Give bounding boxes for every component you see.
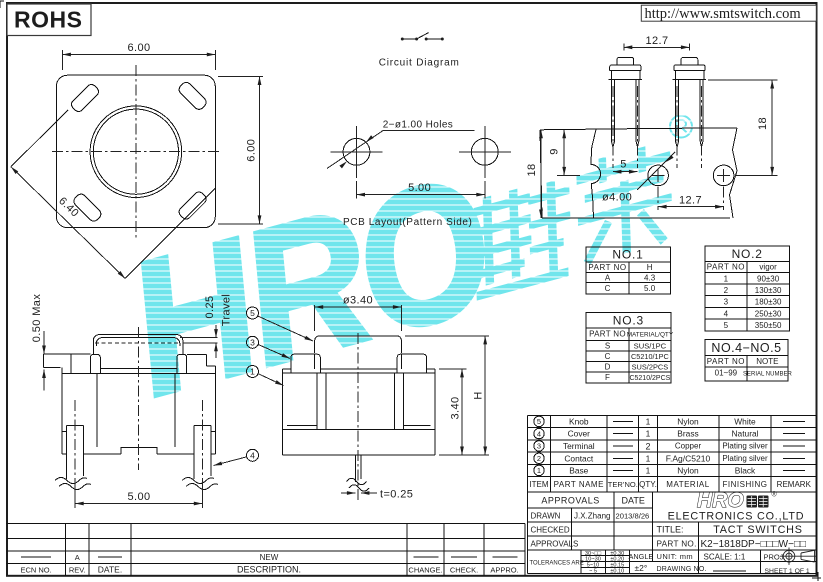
svg-text:Copper: Copper <box>675 441 702 450</box>
svg-text:S: S <box>605 341 610 350</box>
svg-text:130±30: 130±30 <box>755 286 782 295</box>
svg-text:2: 2 <box>537 454 541 463</box>
svg-text:J.X.Zhang: J.X.Zhang <box>574 511 610 520</box>
svg-text:NO.1: NO.1 <box>612 248 643 262</box>
svg-text:5: 5 <box>620 159 627 171</box>
svg-text:3: 3 <box>724 298 729 307</box>
svg-text:CHECK.: CHECK. <box>450 565 478 574</box>
svg-text:QTY.: QTY. <box>639 480 657 489</box>
svg-text:18: 18 <box>526 163 538 176</box>
svg-text:18: 18 <box>757 117 769 130</box>
svg-text:PROJ.: PROJ. <box>764 552 786 561</box>
svg-text:1: 1 <box>537 466 541 475</box>
svg-text:NOTE: NOTE <box>756 357 778 366</box>
svg-text:t=0.25: t=0.25 <box>380 489 413 501</box>
svg-text:5: 5 <box>250 308 255 318</box>
svg-text:DESCRIPTION.: DESCRIPTION. <box>237 565 301 575</box>
svg-text:SCALE: 1:1: SCALE: 1:1 <box>704 552 746 561</box>
svg-text:350±50: 350±50 <box>755 321 782 330</box>
svg-text:APPROVALS: APPROVALS <box>531 539 579 548</box>
svg-text:SERIAL NUMBER: SERIAL NUMBER <box>743 371 792 377</box>
svg-text:90±30: 90±30 <box>757 274 780 283</box>
svg-text:APPRO.: APPRO. <box>490 565 518 574</box>
svg-text:C: C <box>605 284 611 293</box>
svg-text:0.25: 0.25 <box>204 295 216 318</box>
svg-text:MATERIAL/QTY: MATERIAL/QTY <box>627 332 674 339</box>
svg-text:C5210/2PCS: C5210/2PCS <box>629 375 670 382</box>
svg-text:1: 1 <box>724 274 729 283</box>
svg-text:MATERIAL: MATERIAL <box>666 480 709 489</box>
svg-text:A: A <box>605 274 611 283</box>
svg-text:Brass: Brass <box>677 429 698 439</box>
svg-text:TOLERANCES ARE: TOLERANCES ARE <box>530 560 584 566</box>
svg-text:2: 2 <box>645 441 650 451</box>
svg-text:6.00: 6.00 <box>246 139 258 162</box>
svg-text:Black: Black <box>735 465 756 475</box>
svg-text:1: 1 <box>250 367 255 377</box>
svg-text:0.50 Max: 0.50 Max <box>31 294 43 343</box>
svg-text:®: ® <box>772 491 778 499</box>
svg-text:PART NO: PART NO <box>589 330 626 339</box>
svg-text:D: D <box>605 363 611 372</box>
svg-text:180±30: 180±30 <box>755 298 782 307</box>
svg-text:DRAWN: DRAWN <box>531 511 561 520</box>
svg-text:5: 5 <box>724 321 729 330</box>
svg-text:2013/8/26: 2013/8/26 <box>616 511 650 520</box>
svg-text:PART NO: PART NO <box>707 357 745 366</box>
svg-text:PART NO: PART NO <box>588 263 626 272</box>
svg-text:±0.10: ±0.10 <box>610 569 624 575</box>
svg-text:4.3: 4.3 <box>644 274 656 283</box>
svg-text:White: White <box>734 416 756 426</box>
svg-text:3.40: 3.40 <box>450 396 462 419</box>
svg-text:12.7: 12.7 <box>645 35 668 47</box>
svg-text:SUS/2PCS: SUS/2PCS <box>632 363 669 372</box>
svg-text:12.7: 12.7 <box>679 194 702 206</box>
svg-text:vigor: vigor <box>759 263 777 272</box>
svg-text:REMARK: REMARK <box>777 480 812 489</box>
svg-text:Knob: Knob <box>569 416 589 426</box>
svg-text:F: F <box>605 373 610 382</box>
svg-text:5.00: 5.00 <box>127 491 150 503</box>
svg-text:5.00: 5.00 <box>408 182 431 194</box>
svg-text:Plating silver: Plating silver <box>722 454 768 463</box>
svg-text:DATE: DATE <box>622 496 645 506</box>
svg-text:Contact: Contact <box>564 453 594 463</box>
svg-text:6.00: 6.00 <box>127 42 150 54</box>
svg-text:K2−1818DP−□□□W−□□: K2−1818DP−□□□W−□□ <box>701 539 807 550</box>
svg-text:4: 4 <box>250 450 255 460</box>
svg-text:REV.: REV. <box>69 565 86 574</box>
svg-text:TITLE:: TITLE: <box>657 524 684 534</box>
svg-text:ITEM: ITEM <box>529 480 548 489</box>
svg-text:Natural: Natural <box>732 429 759 439</box>
svg-text:F.Ag/C5210: F.Ag/C5210 <box>666 453 711 463</box>
svg-text:PART NO: PART NO <box>707 263 745 272</box>
svg-text:H: H <box>647 263 653 272</box>
svg-text:SUS/1PC: SUS/1PC <box>634 341 667 350</box>
svg-text:3: 3 <box>250 337 255 347</box>
svg-text:5.0: 5.0 <box>644 284 656 293</box>
svg-text:Nylon: Nylon <box>677 465 699 475</box>
svg-text:C5210/1PC: C5210/1PC <box>631 352 669 361</box>
svg-text:1: 1 <box>646 453 651 463</box>
svg-text:±2°: ±2° <box>635 563 648 573</box>
svg-text:250±30: 250±30 <box>755 309 782 318</box>
svg-text:2−ø1.00 Holes: 2−ø1.00 Holes <box>383 120 454 131</box>
svg-text:http://www.smtswitch.com: http://www.smtswitch.com <box>645 6 802 22</box>
svg-text:4: 4 <box>537 429 541 438</box>
svg-text:3: 3 <box>537 442 541 451</box>
svg-text:DRAWING NO.: DRAWING NO. <box>657 566 707 573</box>
svg-text:1: 1 <box>646 465 651 475</box>
svg-text:NO.2: NO.2 <box>732 247 763 261</box>
svg-text:ROHS: ROHS <box>14 7 82 33</box>
svg-text:HRO: HRO <box>697 489 744 512</box>
svg-text:ECN NO.: ECN NO. <box>20 565 51 574</box>
svg-text:CHECKED: CHECKED <box>531 525 570 534</box>
svg-text:Base: Base <box>569 465 588 475</box>
svg-text:2: 2 <box>724 286 729 295</box>
svg-text:UNIT: mm: UNIT: mm <box>657 552 694 561</box>
svg-text:1: 1 <box>646 429 651 439</box>
svg-text:TACT SWITCHS: TACT SWITCHS <box>713 524 803 536</box>
svg-text:NEW: NEW <box>260 553 279 562</box>
svg-text:Terminal: Terminal <box>563 441 595 451</box>
svg-text:01~99: 01~99 <box>715 369 738 378</box>
svg-text:Plating silver: Plating silver <box>722 441 768 450</box>
svg-text:ø4.00: ø4.00 <box>602 192 632 204</box>
svg-text:H: H <box>473 391 485 399</box>
svg-text:ø3.40: ø3.40 <box>343 295 373 307</box>
svg-text:~ 5: ~ 5 <box>589 569 597 575</box>
svg-text:CHANGE.: CHANGE. <box>408 565 442 574</box>
svg-text:Circuit Diagram: Circuit Diagram <box>379 58 460 69</box>
svg-text:NO.4−NO.5: NO.4−NO.5 <box>711 341 781 355</box>
svg-text:5: 5 <box>537 417 541 426</box>
svg-text:4: 4 <box>724 309 729 318</box>
svg-text:PCB Layout(Pattern Side): PCB Layout(Pattern Side) <box>343 217 472 228</box>
svg-text:PART NO.: PART NO. <box>657 539 697 548</box>
svg-text:PART NAME: PART NAME <box>554 480 604 489</box>
svg-text:FINISHING: FINISHING <box>723 480 768 489</box>
svg-text:9: 9 <box>549 148 561 155</box>
svg-text:DATE.: DATE. <box>98 565 122 575</box>
svg-text:SHEET 1 OF 1: SHEET 1 OF 1 <box>765 568 810 575</box>
svg-text:1: 1 <box>646 416 651 426</box>
svg-text:Travel: Travel <box>221 294 233 327</box>
svg-text:APPROVALS: APPROVALS <box>541 496 599 506</box>
svg-text:ANGLE: ANGLE <box>629 552 654 561</box>
svg-text:Cover: Cover <box>568 429 591 439</box>
svg-text:C: C <box>605 352 611 361</box>
svg-text:TER’NO.: TER’NO. <box>608 480 638 489</box>
svg-text:ELECTRONICS CO.,LTD: ELECTRONICS CO.,LTD <box>668 511 805 523</box>
svg-text:A: A <box>75 553 80 562</box>
svg-text:NO.3: NO.3 <box>613 314 644 328</box>
svg-text:Nylon: Nylon <box>677 416 699 426</box>
